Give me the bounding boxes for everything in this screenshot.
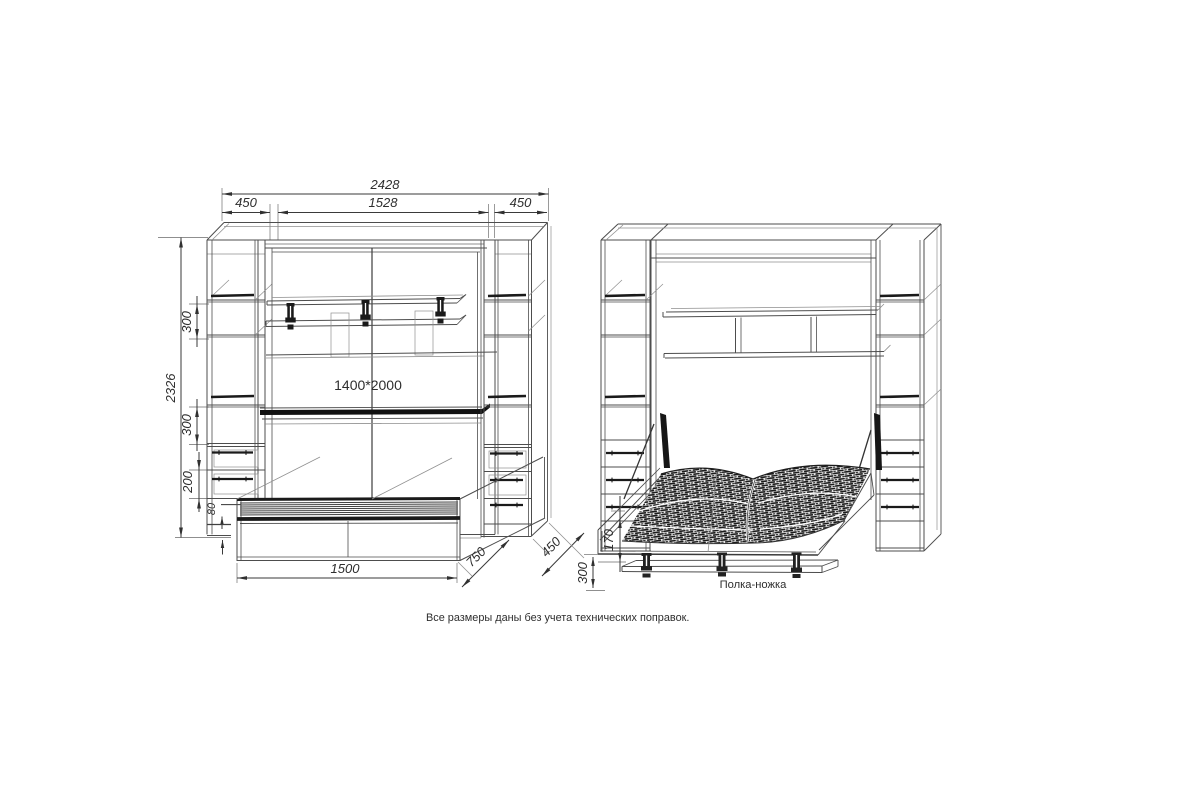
svg-text:2428: 2428 [370, 177, 401, 192]
svg-text:300: 300 [179, 413, 194, 435]
svg-text:1500: 1500 [331, 561, 361, 576]
svg-text:Полка-ножка: Полка-ножка [720, 579, 788, 591]
svg-text:300: 300 [575, 561, 590, 583]
svg-text:1400*2000: 1400*2000 [334, 377, 402, 393]
svg-text:200: 200 [180, 470, 195, 493]
svg-text:300: 300 [179, 310, 194, 332]
svg-text:1528: 1528 [369, 195, 399, 210]
svg-text:450: 450 [235, 195, 257, 210]
svg-text:2326: 2326 [163, 373, 178, 404]
svg-text:450: 450 [510, 195, 532, 210]
svg-text:Все размеры даны без учета тех: Все размеры даны без учета технических п… [426, 612, 689, 624]
svg-text:170: 170 [601, 528, 616, 550]
